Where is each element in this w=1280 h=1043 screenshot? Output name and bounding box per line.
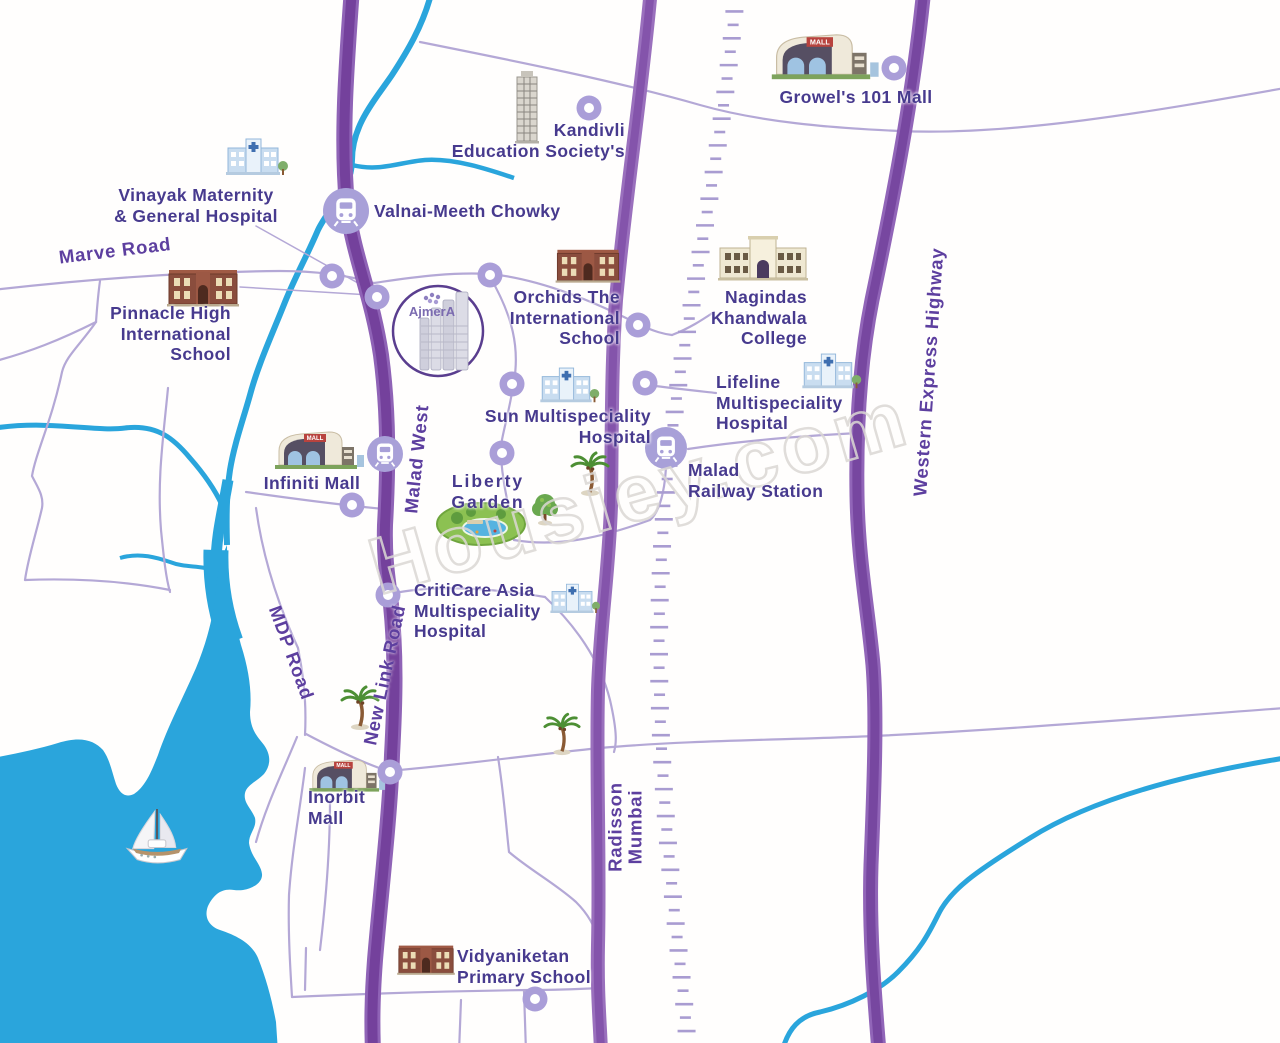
- valnai-meeth-chowky-station-icon: [323, 188, 369, 234]
- project-site-badge: AjmerA: [393, 286, 483, 376]
- marve-road-marker: [320, 264, 345, 289]
- railway-ticks: [650, 0, 743, 1043]
- liberty-garden-marker: [490, 441, 515, 466]
- liberty-garden-icon: [437, 503, 525, 545]
- sun-hospital-icon: [540, 368, 599, 402]
- inorbit-marker: [378, 760, 403, 785]
- kandivli-marker: [577, 96, 602, 121]
- nagindas-marker: [626, 313, 651, 338]
- vidyaniketan-school-icon: [397, 946, 455, 975]
- growels-mall-icon: [772, 35, 879, 79]
- western-express-highway-path: [857, 0, 924, 1043]
- map-canvas: MALL: [0, 0, 1280, 1043]
- river-tributary-west: [0, 425, 222, 505]
- sun-hospital-marker: [500, 372, 525, 397]
- junction-marker: [365, 285, 390, 310]
- vinayak-hospital-icon: [226, 139, 288, 175]
- location-map: MALL: [0, 0, 1280, 1043]
- pinnacle-school-icon: [167, 270, 239, 307]
- tree-icon: [532, 494, 558, 526]
- palm-tree-icon: [342, 687, 378, 730]
- lifeline-hospital-icon: [802, 354, 861, 388]
- malad-west-station-icon: [367, 436, 403, 472]
- orchids-marker: [478, 263, 503, 288]
- railway-line: [659, 0, 736, 1043]
- kandivli-tower-icon: [515, 71, 539, 144]
- lifeline-marker: [633, 371, 658, 396]
- river-branch-east: [352, 160, 514, 178]
- malad-railway-station-icon: [645, 427, 687, 469]
- major-roads: [344, 0, 924, 1043]
- vidyaniketan-marker: [523, 987, 548, 1012]
- orchids-school-icon: [556, 250, 621, 283]
- palm-tree-icon: [545, 714, 579, 755]
- infiniti-marker: [340, 493, 365, 518]
- palm-tree-icon: [572, 453, 608, 496]
- growels-marker: [882, 56, 907, 81]
- infiniti-mall-icon: [275, 432, 364, 469]
- new-link-road-path: [344, 0, 394, 1043]
- nagindas-college-icon: [718, 236, 808, 281]
- mdp-road-path: [256, 508, 305, 735]
- criticare-marker: [376, 583, 401, 608]
- river-southeast: [782, 758, 1280, 1043]
- project-name-text: AjmerA: [409, 304, 456, 319]
- criticare-hospital-icon: [550, 584, 600, 613]
- water-bodies: [0, 0, 1280, 1043]
